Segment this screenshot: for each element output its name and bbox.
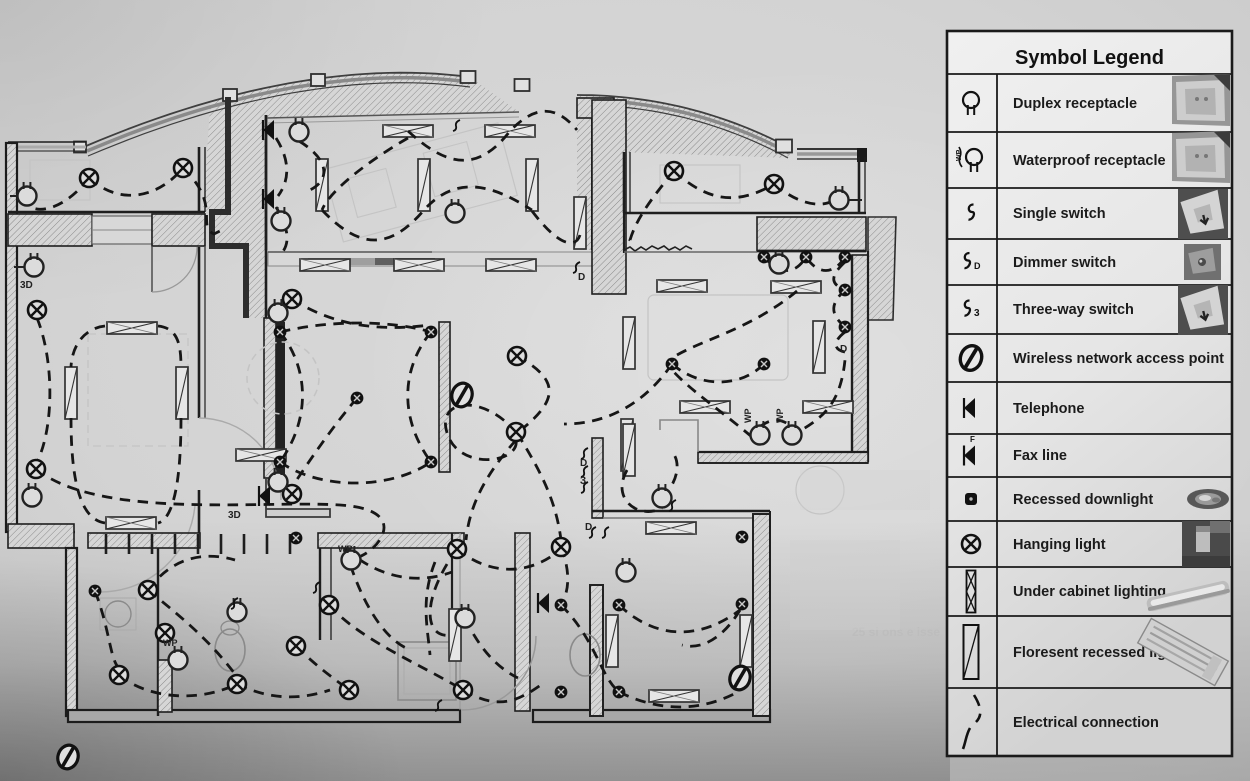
svg-text:Electrical connection: Electrical connection [1013,715,1159,731]
svg-text:Telephone: Telephone [1013,401,1084,417]
svg-text:Duplex receptacle: Duplex receptacle [1013,96,1137,112]
svg-text:WP: WP [956,149,963,161]
svg-text:3D: 3D [20,280,33,291]
svg-text:Recessed downlight: Recessed downlight [1013,492,1153,508]
svg-text:D: D [840,344,847,355]
svg-text:WP: WP [163,638,178,648]
svg-text:Single switch: Single switch [1013,206,1106,222]
svg-text:Dimmer switch: Dimmer switch [1013,255,1116,271]
svg-text:3: 3 [580,475,586,487]
svg-text:Fax line: Fax line [1013,448,1067,464]
svg-text:WP: WP [743,409,753,424]
svg-text:F: F [970,435,975,444]
svg-text:3D: 3D [228,510,241,521]
svg-text:D: D [578,272,585,283]
svg-text:WP: WP [338,544,353,554]
svg-text:Symbol Legend: Symbol Legend [1015,47,1164,69]
svg-text:Waterproof receptacle: Waterproof receptacle [1013,153,1166,169]
svg-text:3: 3 [974,308,980,319]
svg-text:Three-way switch: Three-way switch [1013,302,1134,318]
svg-text:Under cabinet lighting: Under cabinet lighting [1013,584,1166,600]
svg-text:Wireless network access point: Wireless network access point [1013,351,1224,367]
svg-text:WP: WP [775,409,785,424]
svg-text:D: D [580,458,587,469]
svg-text:Hanging light: Hanging light [1013,537,1106,553]
svg-text:D: D [585,522,592,533]
svg-text:D: D [974,261,981,271]
